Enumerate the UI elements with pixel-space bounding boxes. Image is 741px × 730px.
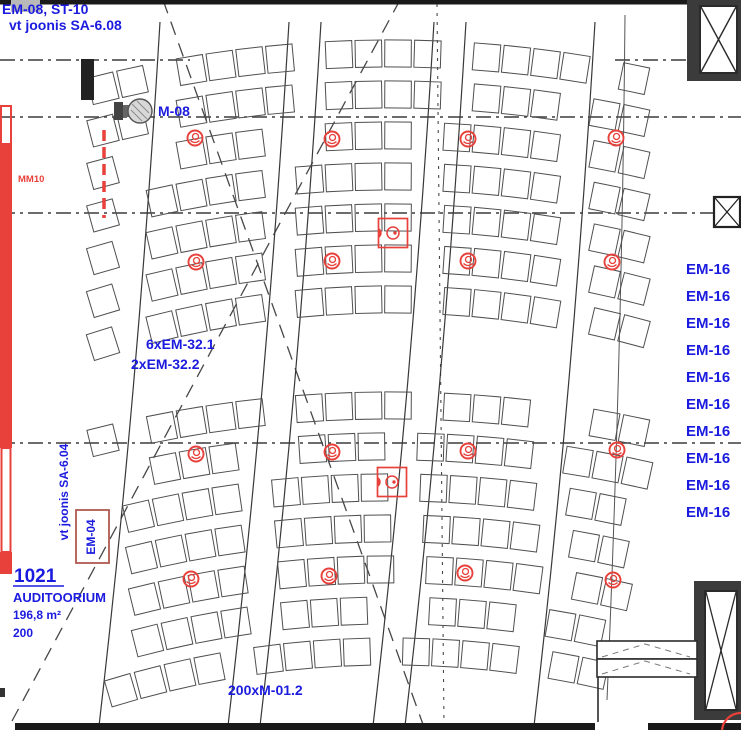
seat — [355, 163, 382, 191]
red-duct-solid — [0, 144, 12, 448]
seat — [513, 564, 543, 594]
seat — [461, 641, 490, 670]
seat — [355, 122, 382, 150]
seat — [443, 205, 471, 234]
em16-label: EM-16 — [686, 288, 730, 305]
em16-label: EM-16 — [686, 261, 730, 278]
seat — [176, 179, 207, 210]
seat — [236, 47, 265, 77]
seat — [472, 395, 501, 424]
seat — [589, 409, 620, 440]
seat — [358, 433, 385, 460]
seat — [325, 287, 353, 315]
diagonal-line — [437, 4, 444, 726]
seat — [530, 297, 561, 328]
seat — [146, 227, 178, 259]
seat — [355, 392, 382, 419]
emergency-fixture-icon — [325, 445, 340, 460]
shaft-right-mid-icon — [714, 197, 740, 227]
em16-label: EM-16 — [686, 315, 730, 332]
seat — [420, 474, 448, 502]
seat — [355, 81, 382, 109]
seat — [176, 406, 207, 437]
seat — [475, 436, 504, 465]
emergency-fixture-icon — [609, 131, 624, 146]
seat — [295, 288, 324, 317]
emergency-fixture-icon — [605, 255, 620, 270]
seat — [589, 266, 621, 298]
seat — [86, 327, 119, 361]
seat — [206, 216, 237, 247]
mm10-label: MM10 — [18, 174, 44, 185]
seat — [125, 541, 157, 573]
seat — [531, 131, 561, 161]
seat — [545, 610, 576, 641]
seat — [507, 480, 537, 510]
seat — [304, 517, 332, 546]
seat — [571, 573, 602, 605]
seat — [458, 599, 487, 628]
emergency-fixture-icon — [189, 255, 204, 270]
seat — [530, 255, 560, 286]
diagonal-line — [12, 0, 400, 721]
seat — [431, 639, 459, 667]
seat — [530, 173, 560, 204]
seat — [531, 49, 561, 79]
seat — [452, 517, 480, 546]
diagonal-construction-lines — [12, 0, 444, 730]
seat — [161, 618, 193, 650]
seat — [236, 129, 266, 159]
seat — [595, 494, 626, 526]
seat — [236, 212, 266, 242]
room-name: AUDITOORIUM — [13, 590, 106, 605]
seat — [385, 245, 412, 272]
seat — [215, 525, 245, 556]
seat — [235, 295, 265, 326]
seat — [191, 612, 222, 643]
seat — [176, 54, 207, 85]
seat — [472, 207, 501, 236]
seat — [334, 515, 362, 543]
seat — [158, 576, 190, 608]
seat — [589, 99, 620, 130]
room-capacity: 200 — [13, 626, 33, 640]
seat — [206, 50, 236, 80]
top-wall — [0, 0, 690, 5]
seat — [501, 169, 530, 199]
seat — [146, 185, 178, 217]
seat — [301, 476, 329, 505]
seat — [281, 600, 310, 629]
seat — [478, 478, 507, 507]
seat — [185, 530, 216, 561]
seat — [325, 82, 353, 110]
seat — [146, 269, 178, 301]
seat — [194, 653, 225, 685]
seat — [592, 451, 623, 482]
auditorium-plan-drawing: EM-08, ST-10 vt joonis SA-6.08 M-08 6xEM… — [0, 0, 741, 730]
room-number: 1021 — [14, 566, 57, 587]
shaft-bottom-right-icon — [694, 581, 741, 720]
seat — [510, 522, 540, 552]
seat — [266, 85, 295, 114]
aisle-line — [534, 22, 595, 726]
fan-device-icon — [114, 99, 152, 123]
seat — [385, 81, 412, 108]
em16-label: EM-16 — [686, 369, 730, 386]
seat — [340, 597, 367, 625]
junction-box-icon — [378, 468, 407, 497]
em16-label: EM-16 — [686, 477, 730, 494]
emergency-fixture-icon — [458, 566, 473, 581]
seat — [176, 138, 207, 169]
seat — [618, 63, 649, 95]
seat — [221, 607, 251, 638]
side-ref-label: vt joonis SA-6.04 — [57, 443, 71, 540]
em16-label: EM-16 — [686, 504, 730, 521]
seat — [563, 446, 594, 477]
seat — [212, 484, 242, 515]
seat — [164, 659, 196, 691]
seat — [325, 41, 353, 69]
seat — [484, 560, 513, 590]
seat — [443, 123, 471, 152]
seat — [414, 81, 441, 109]
seat — [501, 87, 530, 117]
seat — [284, 641, 313, 670]
seat — [472, 125, 501, 154]
seat — [589, 308, 621, 340]
seat — [501, 210, 531, 240]
seat — [236, 171, 266, 201]
fixture-count-label-2: 2xEM-32.2 — [131, 356, 200, 372]
seat — [501, 128, 530, 158]
seat — [443, 246, 471, 275]
seat — [206, 174, 236, 205]
seat — [117, 65, 149, 97]
seat-type-label: 200xM-01.2 — [228, 682, 303, 698]
aisle-line — [99, 22, 160, 726]
seat — [275, 519, 304, 548]
seat — [104, 674, 137, 707]
seat — [86, 284, 119, 318]
seat — [146, 412, 177, 444]
top-ref-label-1: EM-08, ST-10 — [2, 1, 89, 17]
seat — [134, 666, 166, 699]
seat — [182, 489, 213, 520]
annotation-text-group: EM-08, ST-10 vt joonis SA-6.08 M-08 6xEM… — [2, 1, 303, 698]
seat — [548, 652, 579, 683]
seat — [295, 206, 324, 235]
emergency-fixture-icon — [325, 254, 340, 269]
seat — [531, 90, 561, 120]
seat — [385, 163, 412, 190]
seat — [589, 224, 620, 256]
seat — [206, 257, 237, 288]
room-area: 196,8 m² — [13, 608, 61, 622]
emergency-fixture-icon — [322, 569, 337, 584]
seat — [618, 105, 650, 137]
emergency-fixture-icon — [184, 572, 199, 587]
red-duct-outline — [2, 448, 11, 552]
seat — [298, 435, 326, 464]
seat — [481, 519, 510, 548]
em04-label: EM-04 — [84, 519, 98, 555]
seat — [417, 433, 444, 461]
seat — [414, 40, 441, 68]
red-duct-solid — [0, 552, 12, 574]
seat — [472, 290, 501, 320]
seat — [569, 530, 600, 561]
seat — [152, 494, 183, 526]
seat — [530, 214, 560, 245]
seat — [325, 164, 353, 192]
seat — [443, 393, 471, 421]
seat — [501, 397, 530, 427]
seat — [385, 40, 412, 67]
seat — [472, 43, 501, 72]
top-ref-label-2: vt joonis SA-6.08 — [9, 17, 122, 33]
seat — [295, 247, 324, 276]
em16-label-column: EM-16EM-16EM-16EM-16EM-16EM-16EM-16EM-16… — [686, 261, 730, 521]
em16-label: EM-16 — [686, 342, 730, 359]
bottom-wall — [648, 723, 741, 730]
seat — [364, 515, 391, 542]
seat — [385, 286, 412, 313]
seat — [618, 315, 651, 348]
fixture-count-label-1: 6xEM-32.1 — [146, 336, 215, 352]
floor-plan-canvas: EM-08, ST-10 vt joonis SA-6.08 M-08 6xEM… — [0, 0, 741, 730]
seat — [501, 45, 530, 75]
seat — [128, 583, 160, 616]
aisle-line — [373, 22, 434, 726]
device-label: M-08 — [158, 103, 190, 119]
seat — [87, 241, 120, 274]
seat — [206, 133, 236, 164]
seating-rows-group — [86, 40, 653, 707]
left-wall-stub — [81, 59, 94, 100]
seat — [355, 286, 382, 314]
seat — [560, 52, 590, 83]
em16-label: EM-16 — [686, 450, 730, 467]
seat — [355, 245, 382, 273]
seat — [295, 394, 323, 423]
shaft-top-right-icon — [687, 0, 741, 81]
seat — [472, 166, 501, 195]
seat — [618, 230, 650, 262]
seat — [206, 402, 236, 432]
seat — [385, 122, 412, 149]
junction-box-icon — [379, 219, 408, 248]
seat — [131, 624, 163, 657]
seat — [385, 392, 412, 419]
seat — [310, 598, 338, 627]
seat — [501, 293, 531, 323]
seat — [176, 304, 208, 336]
seat — [179, 448, 210, 479]
aisle-line — [405, 22, 466, 726]
seat — [618, 273, 650, 306]
seat — [337, 556, 365, 584]
seat — [313, 639, 341, 668]
seat — [426, 557, 454, 585]
seat — [235, 253, 265, 283]
seat — [566, 488, 597, 519]
seat — [278, 559, 307, 588]
seat — [472, 248, 501, 277]
seat — [487, 602, 516, 632]
seat — [501, 251, 531, 281]
seat — [87, 424, 119, 457]
seat — [402, 638, 429, 666]
seat — [589, 182, 620, 214]
centerline-group — [0, 60, 741, 443]
seat — [236, 88, 266, 118]
em16-label: EM-16 — [686, 423, 730, 440]
wall-stub — [0, 688, 5, 697]
seat — [325, 393, 353, 421]
seat — [343, 638, 370, 666]
bottom-wall — [15, 723, 595, 730]
seat — [325, 205, 353, 233]
seat — [266, 44, 295, 73]
seat — [355, 40, 382, 67]
seat — [490, 643, 520, 673]
red-duct-outline — [1, 106, 11, 144]
seat — [155, 535, 186, 567]
seat — [176, 221, 207, 253]
seat — [206, 299, 237, 330]
seat — [429, 598, 457, 626]
seat — [209, 443, 239, 474]
aisle-line — [228, 22, 289, 726]
em16-label: EM-16 — [686, 396, 730, 413]
bottom-landing-structure — [597, 641, 697, 722]
seat — [123, 500, 155, 532]
emergency-fixture-icon — [325, 132, 340, 147]
seat — [449, 476, 477, 505]
seat — [618, 415, 649, 447]
seat — [472, 84, 501, 113]
seat — [621, 457, 653, 489]
